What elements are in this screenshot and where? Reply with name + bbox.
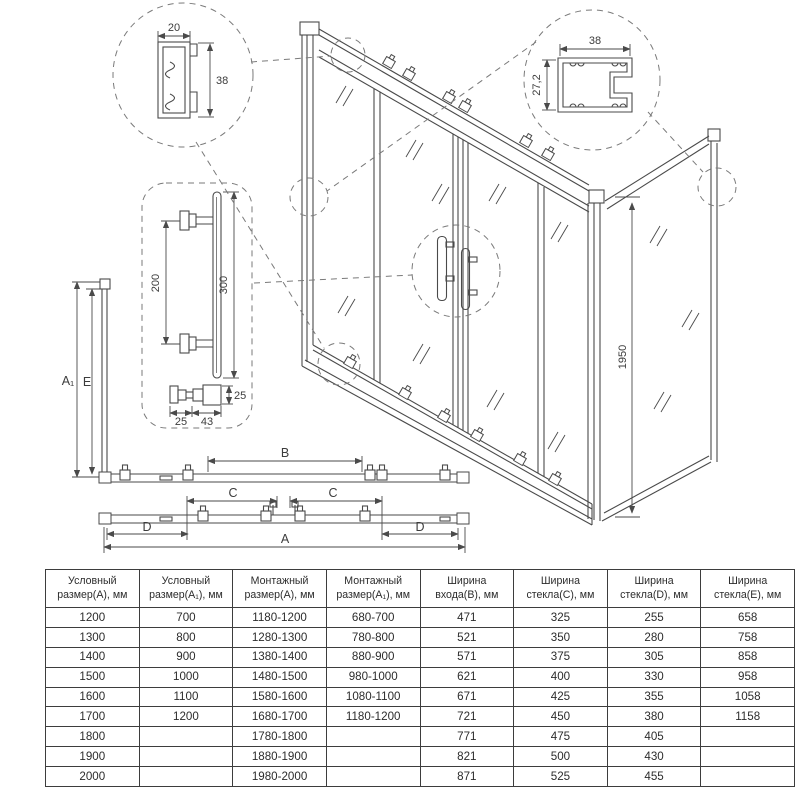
dim-label-E: E bbox=[83, 375, 91, 389]
table-cell: 1500 bbox=[46, 667, 140, 687]
table-cell: 1058 bbox=[701, 687, 795, 707]
table-cell: 880-900 bbox=[326, 647, 420, 667]
table-cell bbox=[701, 747, 795, 767]
table-cell: 800 bbox=[139, 627, 233, 647]
column-header: Ширина входа(В), мм bbox=[420, 570, 514, 608]
table-row: 18001780-1800771475405 bbox=[46, 727, 795, 747]
table-cell: 1880-1900 bbox=[233, 747, 327, 767]
table-cell bbox=[326, 767, 420, 787]
table-row: 170012001680-17001180-12007214503801158 bbox=[46, 707, 795, 727]
table-cell: 525 bbox=[514, 767, 608, 787]
column-header: Ширина стекла(Е), мм bbox=[701, 570, 795, 608]
table-cell: 430 bbox=[607, 747, 701, 767]
table-cell: 400 bbox=[514, 667, 608, 687]
table-cell: 355 bbox=[607, 687, 701, 707]
table-cell: 375 bbox=[514, 647, 608, 667]
table-cell: 1200 bbox=[46, 608, 140, 628]
column-header: Условный размер(А), мм bbox=[46, 570, 140, 608]
table-cell: 455 bbox=[607, 767, 701, 787]
column-header: Условный размер(А₁), мм bbox=[139, 570, 233, 608]
table-cell: 1000 bbox=[139, 667, 233, 687]
dim-label-wall-profile-depth: 27,2 bbox=[531, 74, 543, 95]
dim-label-B: B bbox=[281, 446, 289, 460]
dim-label-D-left: D bbox=[142, 520, 151, 534]
column-header: Ширина стекла(С), мм bbox=[514, 570, 608, 608]
table-cell: 1158 bbox=[701, 707, 795, 727]
table-cell: 1100 bbox=[139, 687, 233, 707]
table-cell: 758 bbox=[701, 627, 795, 647]
table-cell: 2000 bbox=[46, 767, 140, 787]
table-cell: 325 bbox=[514, 608, 608, 628]
table-cell: 1200 bbox=[139, 707, 233, 727]
table-cell: 1180-1200 bbox=[233, 608, 327, 628]
table-cell bbox=[139, 747, 233, 767]
table-cell: 721 bbox=[420, 707, 514, 727]
technical-drawing-page: 20 38 38 27,2 bbox=[0, 0, 800, 799]
table-cell: 1780-1800 bbox=[233, 727, 327, 747]
table-cell bbox=[701, 727, 795, 747]
table-cell bbox=[326, 747, 420, 767]
table-cell: 680-700 bbox=[326, 608, 420, 628]
table-cell: 1900 bbox=[46, 747, 140, 767]
dim-label-C-left: C bbox=[228, 486, 237, 500]
top-rail-profile-detail: 20 38 bbox=[113, 3, 253, 147]
side-panel: 1950 bbox=[602, 129, 720, 521]
table-cell: 621 bbox=[420, 667, 514, 687]
table-cell: 380 bbox=[607, 707, 701, 727]
table-cell: 1980-2000 bbox=[233, 767, 327, 787]
glass-reflection-marks bbox=[336, 86, 568, 452]
table-cell: 425 bbox=[514, 687, 608, 707]
table-row: 13008001280-1300780-800521350280758 bbox=[46, 627, 795, 647]
table-row: 150010001480-1500980-1000621400330958 bbox=[46, 667, 795, 687]
dim-label-handle-knob-depth: 25 bbox=[234, 390, 246, 402]
table-cell: 700 bbox=[139, 608, 233, 628]
table-row: 19001880-1900821500430 bbox=[46, 747, 795, 767]
dim-label-A: A bbox=[281, 532, 290, 546]
dim-label-handle-knob-w: 25 bbox=[175, 416, 187, 428]
callout-ellipse bbox=[524, 10, 660, 150]
table-cell: 571 bbox=[420, 647, 514, 667]
table-cell: 658 bbox=[701, 608, 795, 628]
table-cell: 500 bbox=[514, 747, 608, 767]
table-cell: 671 bbox=[420, 687, 514, 707]
table-row: 12007001180-1200680-700471325255658 bbox=[46, 608, 795, 628]
table-cell: 980-1000 bbox=[326, 667, 420, 687]
table-cell: 871 bbox=[420, 767, 514, 787]
table-cell: 405 bbox=[607, 727, 701, 747]
dim-label-D-right: D bbox=[415, 520, 424, 534]
table-cell: 1080-1100 bbox=[326, 687, 420, 707]
dim-label-height: 1950 bbox=[617, 345, 629, 369]
table-cell: 821 bbox=[420, 747, 514, 767]
table-cell: 1180-1200 bbox=[326, 707, 420, 727]
table-cell: 255 bbox=[607, 608, 701, 628]
dim-label-handle-spacing: 200 bbox=[150, 274, 162, 292]
table-cell: 780-800 bbox=[326, 627, 420, 647]
table-cell: 305 bbox=[607, 647, 701, 667]
dim-label-top-profile-height: 38 bbox=[216, 75, 228, 87]
table-cell: 771 bbox=[420, 727, 514, 747]
table-cell bbox=[326, 727, 420, 747]
table-cell: 350 bbox=[514, 627, 608, 647]
size-table-container: Условный размер(А), ммУсловный размер(А₁… bbox=[45, 569, 795, 787]
table-cell bbox=[139, 727, 233, 747]
table-cell: 858 bbox=[701, 647, 795, 667]
callout-links bbox=[196, 38, 736, 385]
table-cell: 330 bbox=[607, 667, 701, 687]
dim-label-C-right: C bbox=[328, 486, 337, 500]
table-cell: 1600 bbox=[46, 687, 140, 707]
header-row: Условный размер(А), ммУсловный размер(А₁… bbox=[46, 570, 795, 608]
wall-profile-detail: 38 27,2 bbox=[524, 10, 660, 150]
table-cell: 1580-1600 bbox=[233, 687, 327, 707]
table-cell: 1800 bbox=[46, 727, 140, 747]
column-header: Ширина стекла(D), мм bbox=[607, 570, 701, 608]
technical-drawing: 20 38 38 27,2 bbox=[0, 0, 800, 569]
table-cell: 521 bbox=[420, 627, 514, 647]
rail-plan-views: B C C D D A bbox=[99, 446, 469, 553]
table-cell: 280 bbox=[607, 627, 701, 647]
table-cell: 900 bbox=[139, 647, 233, 667]
table-cell: 958 bbox=[701, 667, 795, 687]
dim-label-handle-knob-len: 43 bbox=[201, 416, 213, 428]
table-row: 20001980-2000871525455 bbox=[46, 767, 795, 787]
table-cell: 450 bbox=[514, 707, 608, 727]
table-cell: 1300 bbox=[46, 627, 140, 647]
dim-label-handle-length: 300 bbox=[218, 276, 230, 294]
column-header: Монтажный размер(А), мм bbox=[233, 570, 327, 608]
table-cell: 471 bbox=[420, 608, 514, 628]
table-cell: 1480-1500 bbox=[233, 667, 327, 687]
column-header: Монтажный размер(А₁), мм bbox=[326, 570, 420, 608]
table-cell: 475 bbox=[514, 727, 608, 747]
table-cell bbox=[139, 767, 233, 787]
handle-detail: 200 300 25 25 43 bbox=[142, 183, 252, 428]
side-elevation-dims: A₁ E bbox=[62, 279, 110, 477]
table-cell: 1380-1400 bbox=[233, 647, 327, 667]
table-cell bbox=[701, 767, 795, 787]
dim-label-top-profile-width: 20 bbox=[168, 22, 180, 34]
size-table: Условный размер(А), ммУсловный размер(А₁… bbox=[45, 569, 795, 787]
callout-ellipse bbox=[113, 3, 253, 147]
dim-label-wall-profile-width: 38 bbox=[589, 35, 601, 47]
dim-label-A1: A₁ bbox=[62, 374, 75, 388]
table-row: 14009001380-1400880-900571375305858 bbox=[46, 647, 795, 667]
table-cell: 1680-1700 bbox=[233, 707, 327, 727]
table-cell: 1280-1300 bbox=[233, 627, 327, 647]
table-cell: 1400 bbox=[46, 647, 140, 667]
table-cell: 1700 bbox=[46, 707, 140, 727]
table-row: 160011001580-16001080-11006714253551058 bbox=[46, 687, 795, 707]
